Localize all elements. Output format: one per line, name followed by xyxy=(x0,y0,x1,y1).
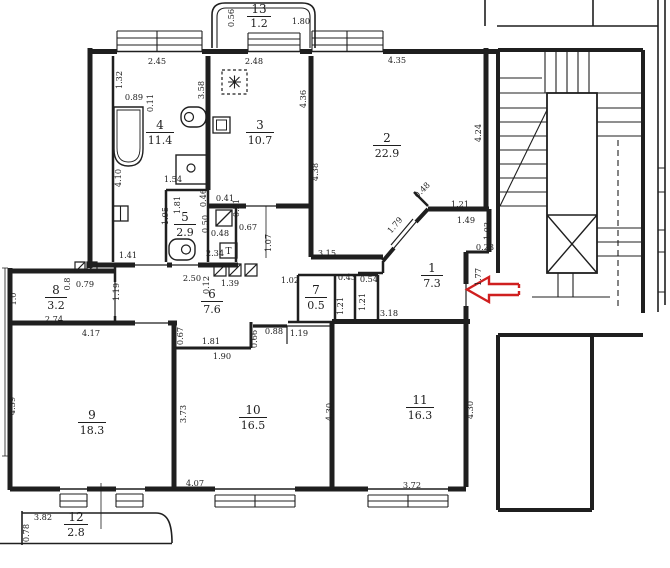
room-area: 0.5 xyxy=(307,299,325,312)
room-label-1: 1 7.3 xyxy=(421,261,443,290)
window-room9-a xyxy=(60,494,87,507)
room-area: 22.9 xyxy=(375,147,400,160)
dim-label: 1.32 xyxy=(114,71,124,89)
room-label-9: 9 18.3 xyxy=(78,408,106,437)
room-number: 9 xyxy=(88,408,96,422)
wall-room2-east xyxy=(486,48,489,252)
dim-label: 3.15 xyxy=(318,248,336,258)
room-number: 6 xyxy=(208,287,216,301)
dim-label: 4.07 xyxy=(186,478,204,488)
window-room10 xyxy=(215,495,295,507)
room-number: 1 xyxy=(428,261,436,275)
dim-label: 0.56 xyxy=(226,9,236,27)
window-room9-b xyxy=(116,494,143,507)
walls-stairwell xyxy=(498,50,643,510)
room-number: 13 xyxy=(251,2,266,16)
dim-label: 1.21 xyxy=(451,199,469,209)
walls-thick xyxy=(10,48,643,510)
dim-label: 1.19 xyxy=(290,328,308,338)
dim-label: 2.48 xyxy=(245,56,263,66)
room-area: 7.6 xyxy=(203,303,221,316)
dim-label: 1.49 xyxy=(457,215,475,225)
toilet-room5-flush xyxy=(182,245,191,254)
dim-label: 1.02 xyxy=(281,275,299,285)
dim-label: 0.67 xyxy=(239,222,257,232)
window-balcony13-door xyxy=(248,33,300,51)
dim-label: 1.03 xyxy=(482,222,492,240)
right-wall-double xyxy=(485,0,665,312)
room-number: 10 xyxy=(245,403,260,417)
dim-label: 0.50 xyxy=(200,215,210,233)
dim-label: 4.24 xyxy=(473,124,483,142)
dim-label: 4.35 xyxy=(388,55,406,65)
floor-plan-drawing: 0.56 1.80 2.45 1.32 0.89 0.11 3.58 2.48 … xyxy=(0,0,670,568)
dim-label: 1.81 xyxy=(202,336,220,346)
dim-label: 3.18 xyxy=(380,308,398,318)
room-number: 3 xyxy=(256,118,264,132)
room-label-4: 4 11.4 xyxy=(146,118,174,147)
room-label-12: 12 2.8 xyxy=(64,510,88,539)
elevator-x-icon xyxy=(547,215,597,273)
room-label-11: 11 16.3 xyxy=(406,393,434,422)
dim-label: 1.21 xyxy=(357,293,367,311)
toilet-room4-flush xyxy=(185,113,194,122)
dim-label: 1.80 xyxy=(292,16,310,26)
dim-label: 1.54 xyxy=(164,174,182,184)
dim-label: 3.72 xyxy=(403,480,421,490)
dim-label: 4.30 xyxy=(324,403,334,421)
room-number: 7 xyxy=(312,283,320,297)
room-number: 4 xyxy=(156,118,164,132)
room-label-3: 3 10.7 xyxy=(246,118,274,147)
dim-label: 4.30 xyxy=(465,401,475,419)
room-area: 10.7 xyxy=(248,134,273,147)
dim-label: 1.39 xyxy=(221,278,239,288)
dim-label: 2.45 xyxy=(148,56,166,66)
floor-plan-scan: 0.56 1.80 2.45 1.32 0.89 0.11 3.58 2.48 … xyxy=(0,0,670,568)
right-wall-ticks xyxy=(658,168,665,292)
room-area: 2.8 xyxy=(67,526,85,539)
walls-room1-left xyxy=(358,261,383,273)
dim-label: 1.41 xyxy=(119,250,137,260)
stairs-right-flight xyxy=(597,108,643,256)
washbasin-drain xyxy=(187,164,195,172)
stove-burner-star xyxy=(228,76,241,89)
window-room4 xyxy=(117,31,202,51)
dim-label: 2.34 xyxy=(206,248,224,258)
room-label-2: 2 22.9 xyxy=(373,131,401,160)
room-number: 2 xyxy=(383,131,391,145)
dim-label: 0.66 xyxy=(249,330,259,348)
dim-label: 3.82 xyxy=(34,512,52,522)
dim-label: 1.95 xyxy=(160,207,170,225)
dim-label: 0.54 xyxy=(360,274,378,284)
elevator-doors xyxy=(532,273,610,297)
room-label-7: 7 0.5 xyxy=(305,283,327,312)
stairs-top-flight xyxy=(498,50,589,93)
dim-label: 0.48 xyxy=(412,180,432,200)
dim-label: 3.58 xyxy=(196,81,206,99)
dim-label: 0.8 xyxy=(62,277,72,290)
room-number: 11 xyxy=(412,393,427,407)
dim-label: 4.38 xyxy=(310,163,320,181)
vent-shaft-kitchen xyxy=(216,210,232,226)
room-number: 12 xyxy=(68,510,83,524)
dim-label: 2.50 xyxy=(183,273,201,283)
kitchen-sink-icon xyxy=(213,117,230,133)
dim-label: 4.17 xyxy=(82,328,100,338)
room-area: 7.3 xyxy=(423,277,441,290)
dim-label: 2.74 xyxy=(45,314,63,324)
dim-label: 4.10 xyxy=(113,169,123,187)
dim-label: 0.89 xyxy=(125,92,143,102)
stairwell xyxy=(498,50,643,308)
bathtub-icon xyxy=(114,107,143,166)
room-area: 2.9 xyxy=(176,226,194,239)
dim-label: 1.77 xyxy=(473,268,483,286)
room-area: 1.2 xyxy=(250,17,268,30)
balconies xyxy=(0,3,315,545)
dim-label: 3.73 xyxy=(178,405,188,423)
dim-label: 1.07 xyxy=(263,234,273,252)
dim-label: 1.0 xyxy=(8,292,18,305)
kitchen-sink-inner xyxy=(217,120,227,130)
dim-label: 4.36 xyxy=(298,90,308,108)
room-area: 18.3 xyxy=(80,424,105,437)
dim-label: 0.78 xyxy=(21,524,31,542)
room-area: 16.3 xyxy=(408,409,433,422)
dim-label: 4.39 xyxy=(7,397,17,415)
window-room2 xyxy=(312,31,383,51)
room-number: 8 xyxy=(52,283,60,297)
room-label-13: 13 1.2 xyxy=(247,2,271,30)
room-label-10: 10 16.5 xyxy=(239,403,267,432)
room-area: 3.2 xyxy=(47,299,65,312)
window-room11 xyxy=(368,495,448,507)
dim-label: 0.11 xyxy=(145,94,155,112)
elevator-shaft xyxy=(547,93,597,273)
dim-label: 0.88 xyxy=(265,326,283,336)
dim-label: 1.21 xyxy=(335,297,345,315)
dim-label: 0.23 xyxy=(476,242,494,252)
dim-label: 1.19 xyxy=(111,283,121,301)
dim-label: 1.90 xyxy=(213,351,231,361)
dim-label: 0.46 xyxy=(198,189,208,207)
windows xyxy=(60,31,448,507)
dim-label: 0.79 xyxy=(76,279,94,289)
building-right-edge xyxy=(485,0,665,312)
room-area: 16.5 xyxy=(241,419,266,432)
dim-label: 0.21 xyxy=(231,199,241,217)
dim-label: 0.43 xyxy=(338,272,356,282)
room-area: 11.4 xyxy=(148,134,173,147)
room-number: 5 xyxy=(181,210,189,224)
dim-label: 0.48 xyxy=(211,228,229,238)
dim-label: 0.67 xyxy=(175,327,185,345)
vent-t-label: T xyxy=(225,247,231,257)
bathtub-inner xyxy=(117,110,140,162)
